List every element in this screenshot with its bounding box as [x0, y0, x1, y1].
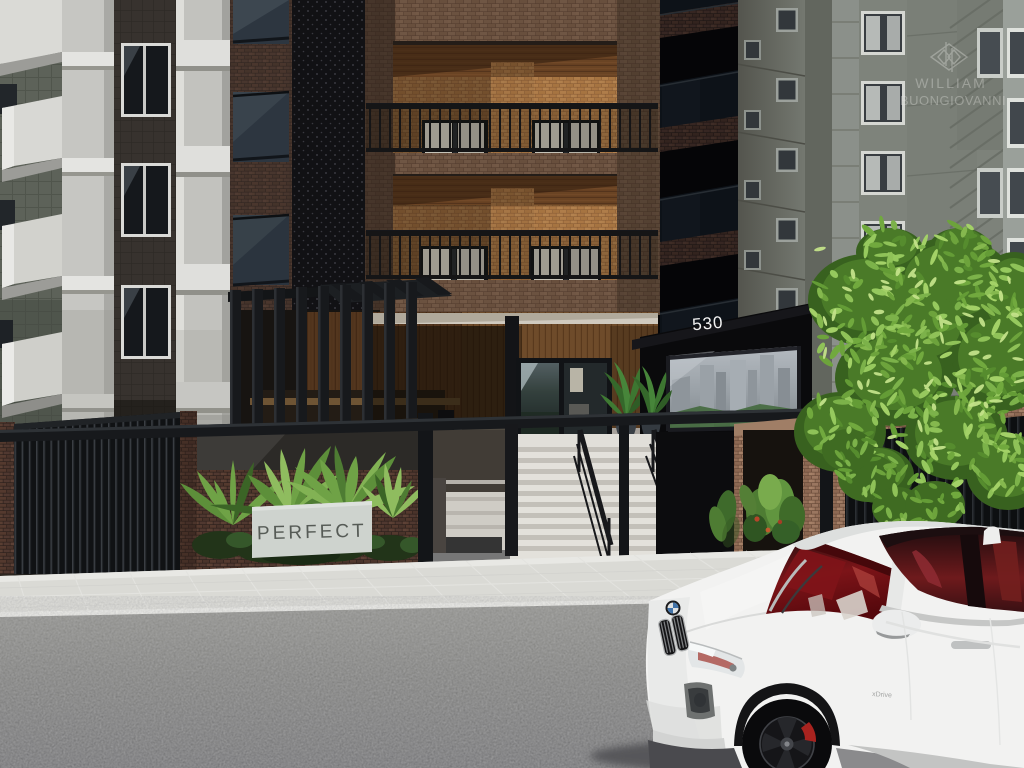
svg-text:PERFECT: PERFECT	[257, 521, 367, 545]
svg-text:WILLIAM: WILLIAM	[915, 75, 987, 91]
svg-text:530: 530	[691, 313, 724, 335]
svg-text:BUONGIOVANNI: BUONGIOVANNI	[900, 93, 1006, 108]
svg-text:xDrive: xDrive	[872, 691, 892, 699]
